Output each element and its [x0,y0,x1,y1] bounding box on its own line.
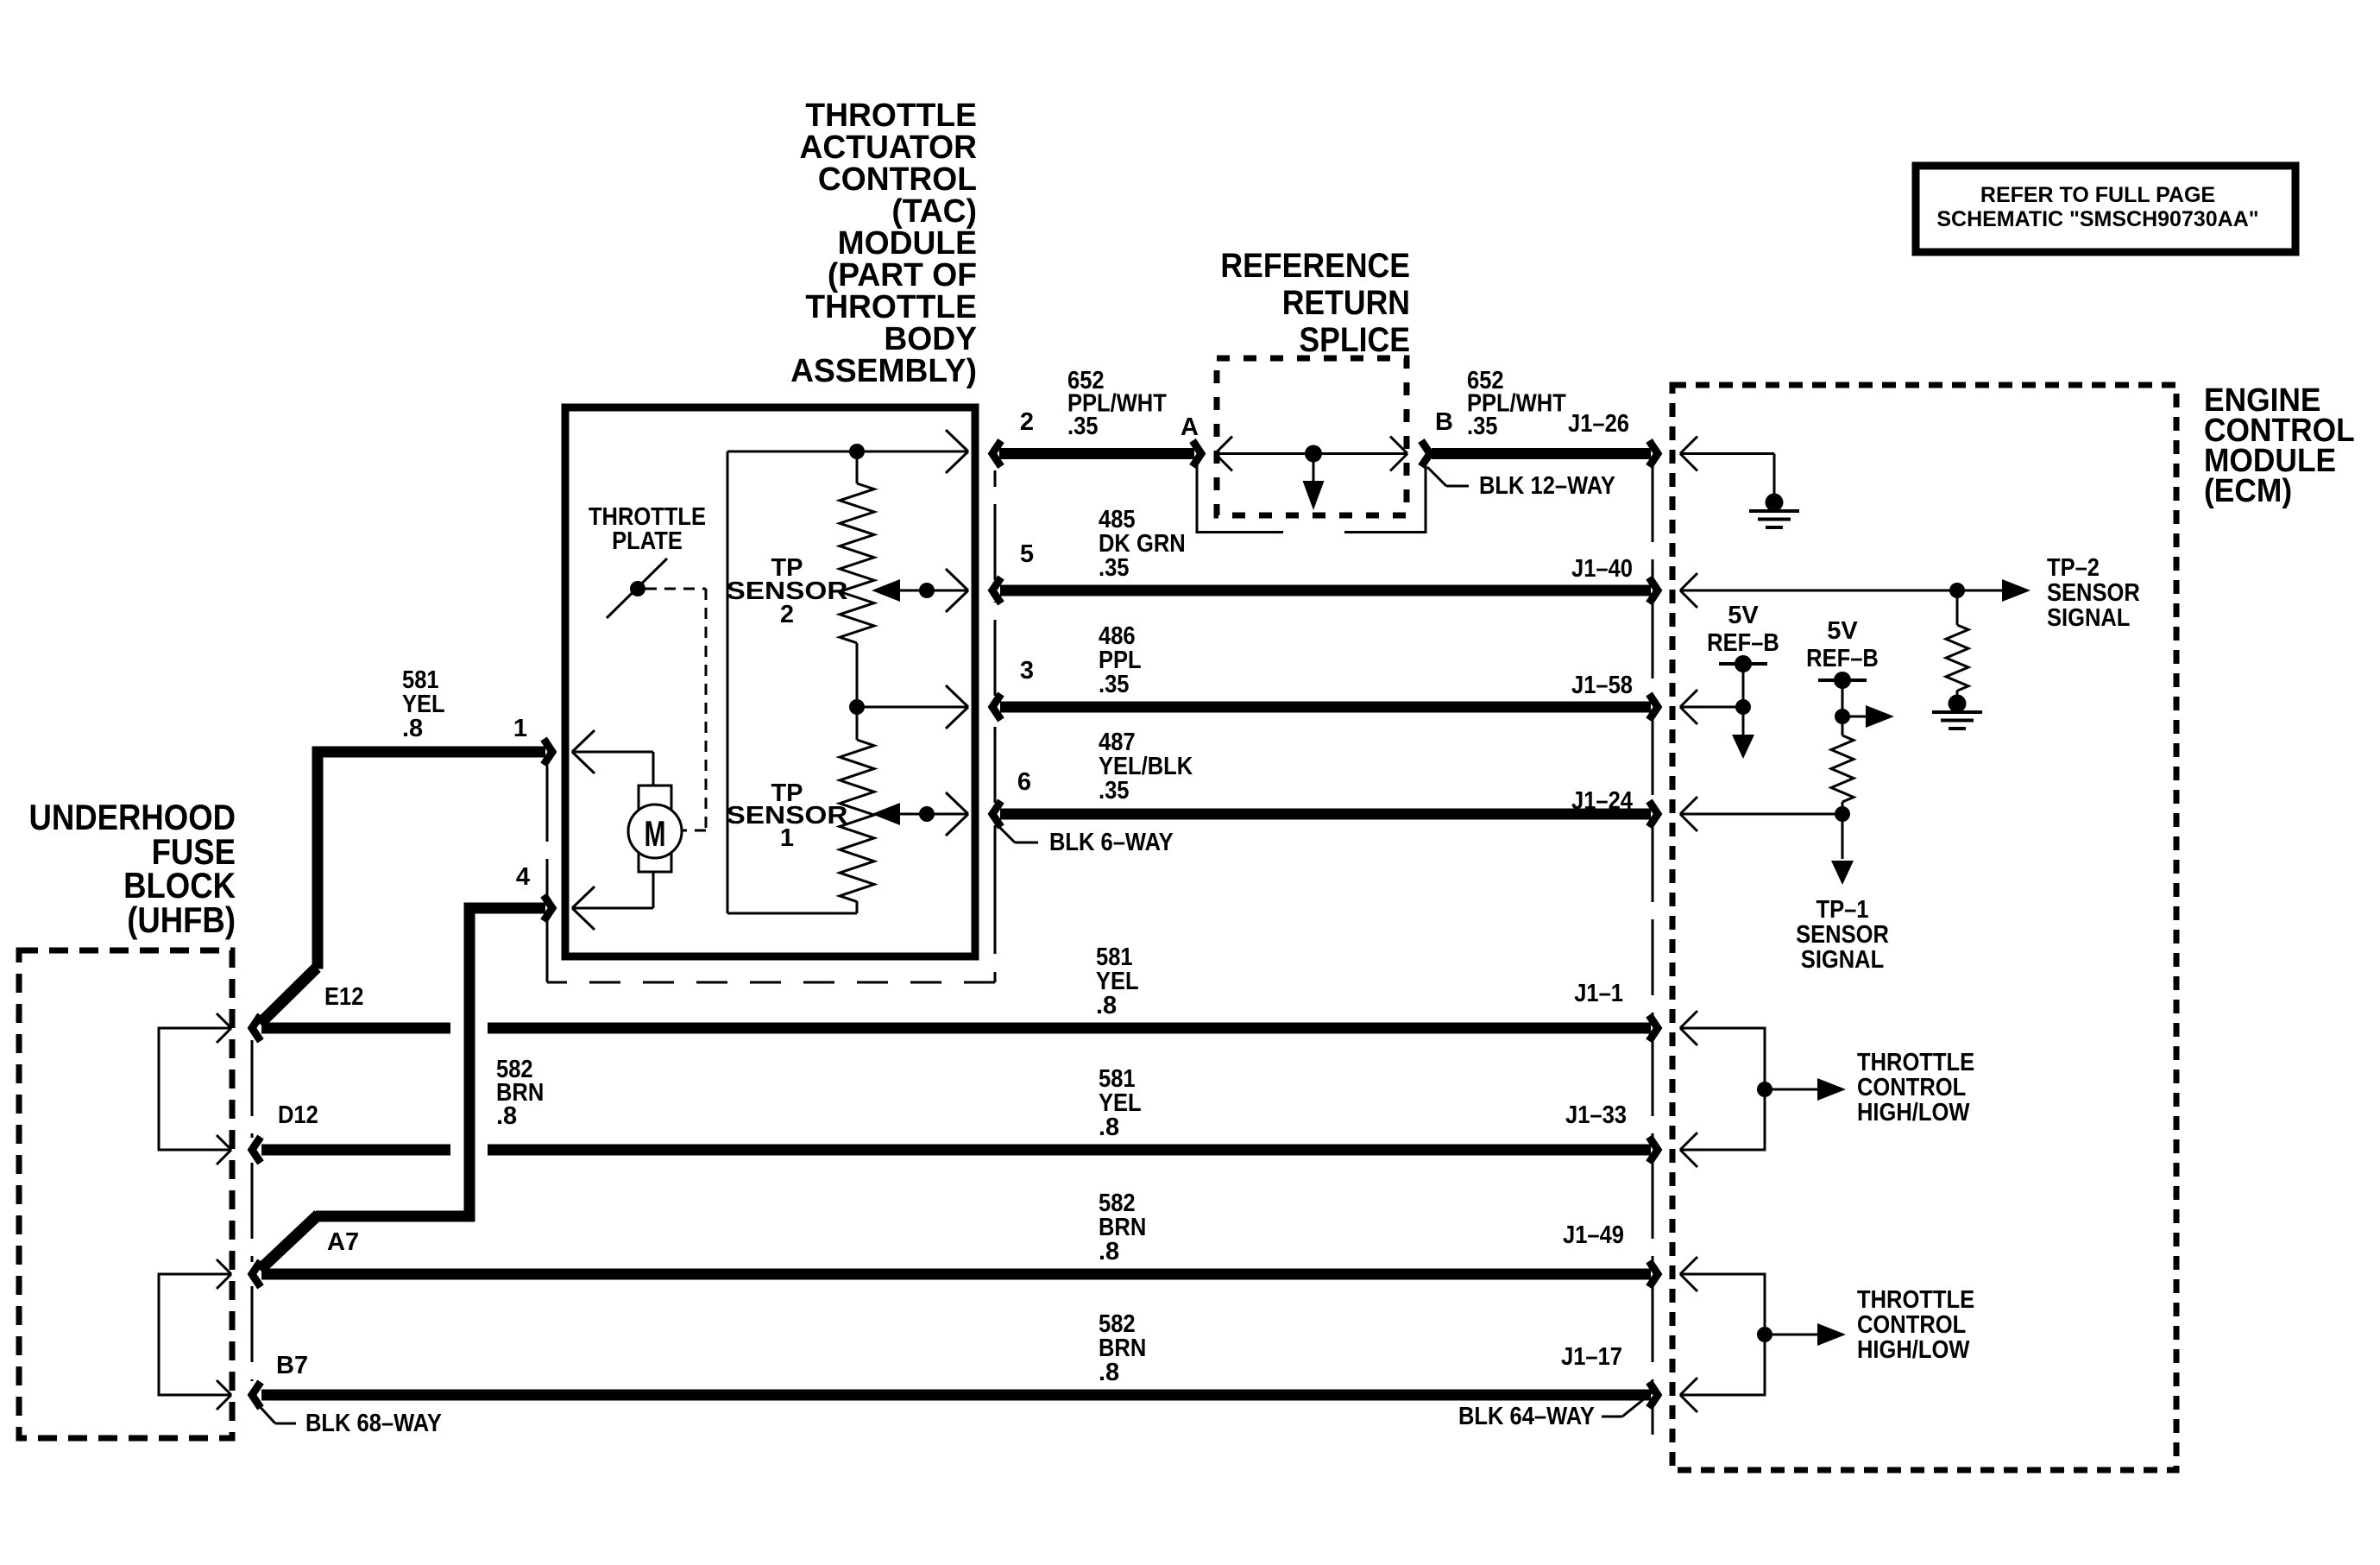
svg-text:PLATE: PLATE [612,527,683,555]
svg-text:.8: .8 [402,715,423,742]
svg-text:SCHEMATIC "SMSCH90730AA": SCHEMATIC "SMSCH90730AA" [1936,207,2258,231]
svg-text:5V: 5V [1728,602,1759,629]
svg-text:.8: .8 [1099,1114,1119,1141]
svg-text:J1–17: J1–17 [1561,1343,1622,1371]
svg-text:HIGH/LOW: HIGH/LOW [1857,1099,1970,1126]
svg-text:5: 5 [1020,540,1034,568]
svg-text:A: A [1181,413,1199,441]
svg-text:REFERENCE: REFERENCE [1220,247,1410,285]
svg-text:(UHFB): (UHFB) [127,899,236,940]
svg-text:SIGNAL: SIGNAL [2047,604,2130,632]
svg-text:(ECM): (ECM) [2204,473,2292,509]
svg-text:4: 4 [516,863,530,891]
svg-text:J1–1: J1–1 [1574,980,1623,1007]
svg-text:BLK 64–WAY: BLK 64–WAY [1458,1403,1595,1430]
svg-text:ACTUATOR: ACTUATOR [800,129,978,166]
svg-text:.35: .35 [1099,554,1130,582]
svg-text:.8: .8 [1099,1359,1119,1386]
svg-text:SPLICE: SPLICE [1299,321,1410,359]
svg-text:SENSOR: SENSOR [2047,579,2140,607]
svg-text:J1–33: J1–33 [1565,1101,1627,1129]
svg-text:M: M [645,813,666,854]
svg-text:2: 2 [780,601,794,628]
svg-text:CONTROL: CONTROL [1857,1311,1966,1339]
svg-text:BLK 68–WAY: BLK 68–WAY [305,1410,442,1437]
svg-text:1: 1 [780,824,794,852]
svg-text:THROTTLE: THROTTLE [805,98,977,134]
svg-text:THROTTLE: THROTTLE [1857,1049,1974,1076]
svg-text:REF–B: REF–B [1707,629,1779,657]
svg-text:.8: .8 [496,1102,517,1130]
svg-text:.8: .8 [1096,992,1117,1019]
svg-text:.35: .35 [1467,413,1498,440]
svg-text:J1–40: J1–40 [1571,555,1633,583]
svg-text:J1–49: J1–49 [1563,1221,1624,1249]
svg-text:B7: B7 [276,1352,308,1379]
svg-text:J1–24: J1–24 [1571,787,1633,815]
svg-text:J1–26: J1–26 [1568,410,1629,438]
svg-text:THROTTLE: THROTTLE [805,289,977,325]
svg-text:REF–B: REF–B [1806,645,1879,672]
svg-text:(TAC): (TAC) [891,193,977,230]
svg-text:RETURN: RETURN [1282,284,1410,322]
svg-text:BODY: BODY [884,321,977,357]
svg-text:5V: 5V [1827,617,1858,645]
svg-text:BLK 12–WAY: BLK 12–WAY [1479,472,1615,500]
svg-text:.35: .35 [1067,413,1099,440]
svg-text:MODULE: MODULE [838,225,977,262]
svg-text:SIGNAL: SIGNAL [1801,946,1884,974]
svg-text:J1–58: J1–58 [1571,672,1633,699]
svg-text:ASSEMBLY): ASSEMBLY) [790,353,977,389]
svg-text:SENSOR: SENSOR [1796,921,1889,949]
svg-text:2: 2 [1020,408,1034,436]
svg-text:.35: .35 [1099,777,1130,805]
svg-text:CONTROL: CONTROL [1857,1074,1966,1101]
svg-text:HIGH/LOW: HIGH/LOW [1857,1336,1970,1364]
svg-text:TP–1: TP–1 [1816,896,1869,924]
svg-text:.35: .35 [1099,671,1130,698]
svg-text:REFER TO FULL PAGE: REFER TO FULL PAGE [1980,183,2215,207]
svg-text:CONTROL: CONTROL [818,161,977,198]
svg-text:TP–2: TP–2 [2047,554,2100,582]
svg-text:B: B [1435,408,1453,436]
svg-text:D12: D12 [278,1101,318,1129]
svg-text:.8: .8 [1099,1238,1119,1265]
svg-text:1: 1 [513,715,527,742]
svg-text:THROTTLE: THROTTLE [1857,1286,1974,1314]
svg-text:3: 3 [1020,657,1034,685]
svg-text:A7: A7 [327,1228,359,1256]
svg-text:(PART OF: (PART OF [828,257,977,293]
svg-text:6: 6 [1017,768,1031,796]
svg-text:E12: E12 [324,983,363,1011]
svg-text:BLK 6–WAY: BLK 6–WAY [1049,829,1174,856]
